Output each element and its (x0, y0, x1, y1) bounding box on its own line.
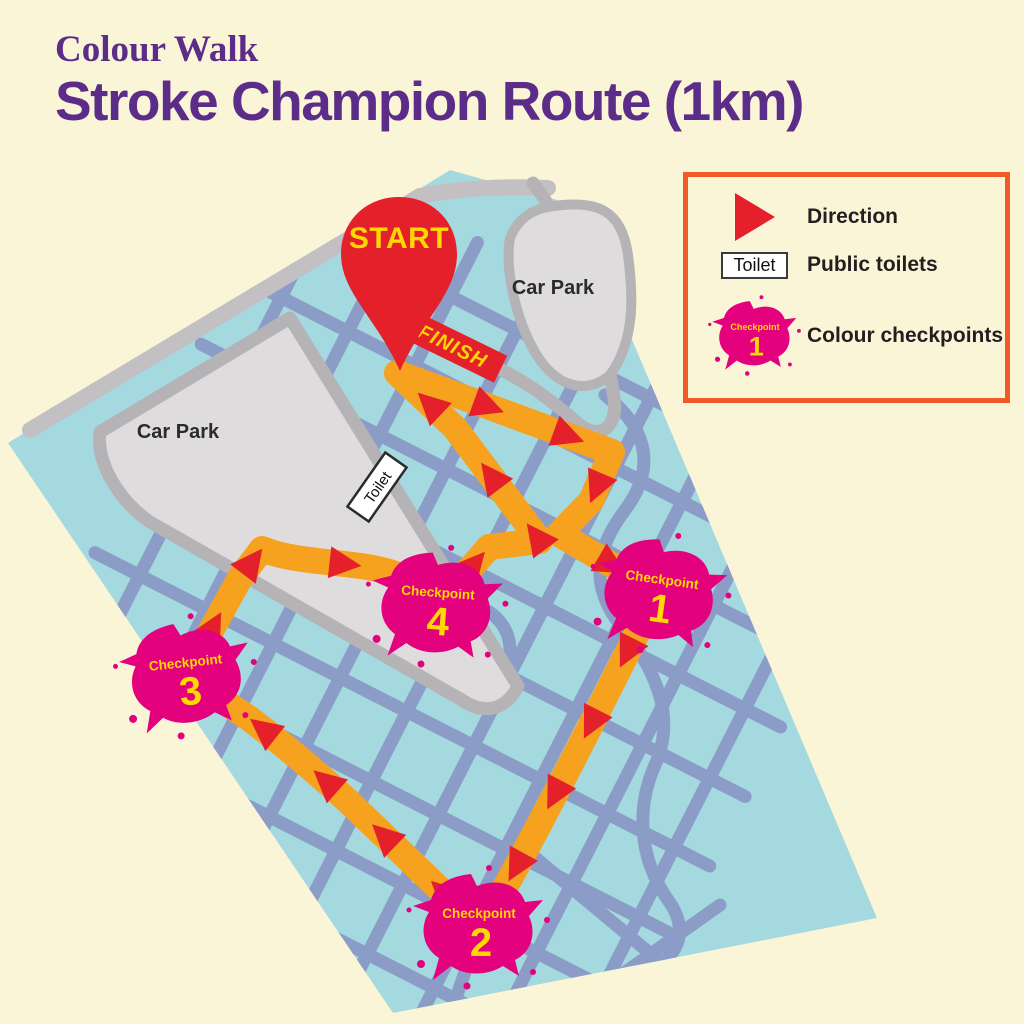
legend-row-checkpoints: Checkpoint 1 Colour checkpoints (702, 290, 1005, 382)
checkpoint-number: 2 (470, 921, 492, 965)
direction-arrow-icon (735, 193, 775, 241)
legend-colour-checkpoints-label: Colour checkpoints (807, 324, 1003, 348)
car-park-left-label: Car Park (137, 421, 220, 443)
legend-row-direction: Direction (702, 193, 1005, 241)
toilet-sign-icon: Toilet (721, 252, 787, 279)
legend-public-toilets-label: Public toilets (807, 253, 938, 277)
checkpoint-number: 4 (425, 599, 451, 644)
start-pin-label: START (349, 222, 449, 255)
car-park-top-label: Car Park (512, 277, 595, 299)
legend: Direction Toilet Public toilets Checkpoi… (683, 172, 1010, 403)
route-map: Car Park Car Park Checkpoint1Checkpoint2… (0, 0, 1024, 1024)
checkpoint-number: 3 (177, 669, 204, 715)
checkpoint-splat-icon: Checkpoint 1 (703, 290, 807, 382)
legend-direction-label: Direction (807, 205, 898, 229)
checkpoint-word: Checkpoint (442, 906, 516, 921)
legend-splat-number: 1 (748, 331, 763, 362)
legend-row-toilets: Toilet Public toilets (702, 252, 1005, 279)
